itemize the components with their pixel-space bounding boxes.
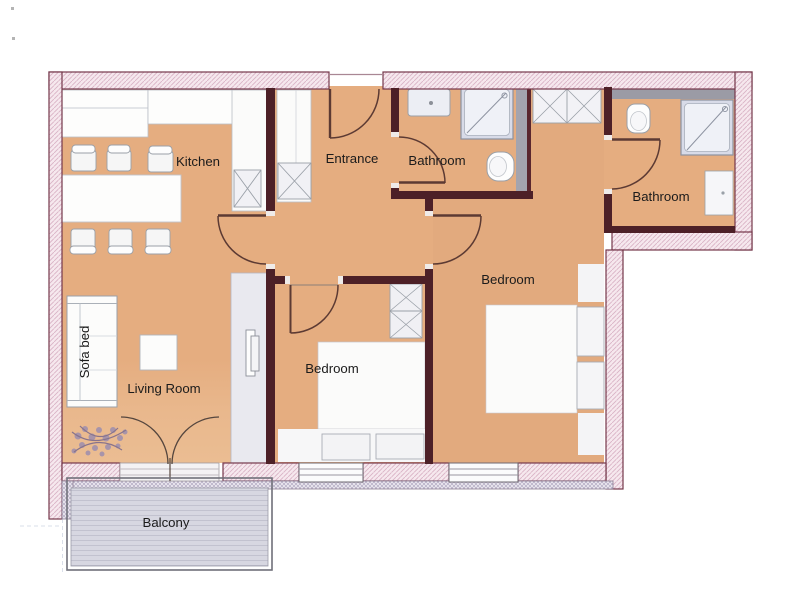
svg-text:Balcony: Balcony <box>143 515 190 530</box>
svg-text:Bathroom: Bathroom <box>632 189 689 204</box>
svg-text:Bathroom: Bathroom <box>408 153 465 168</box>
svg-text:Kitchen: Kitchen <box>176 154 220 169</box>
svg-text:Bedroom: Bedroom <box>481 272 535 287</box>
svg-text:Entrance: Entrance <box>326 151 379 166</box>
svg-text:Living Room: Living Room <box>127 381 200 396</box>
svg-text:Sofa bed: Sofa bed <box>77 326 92 379</box>
svg-text:Bedroom: Bedroom <box>305 361 359 376</box>
